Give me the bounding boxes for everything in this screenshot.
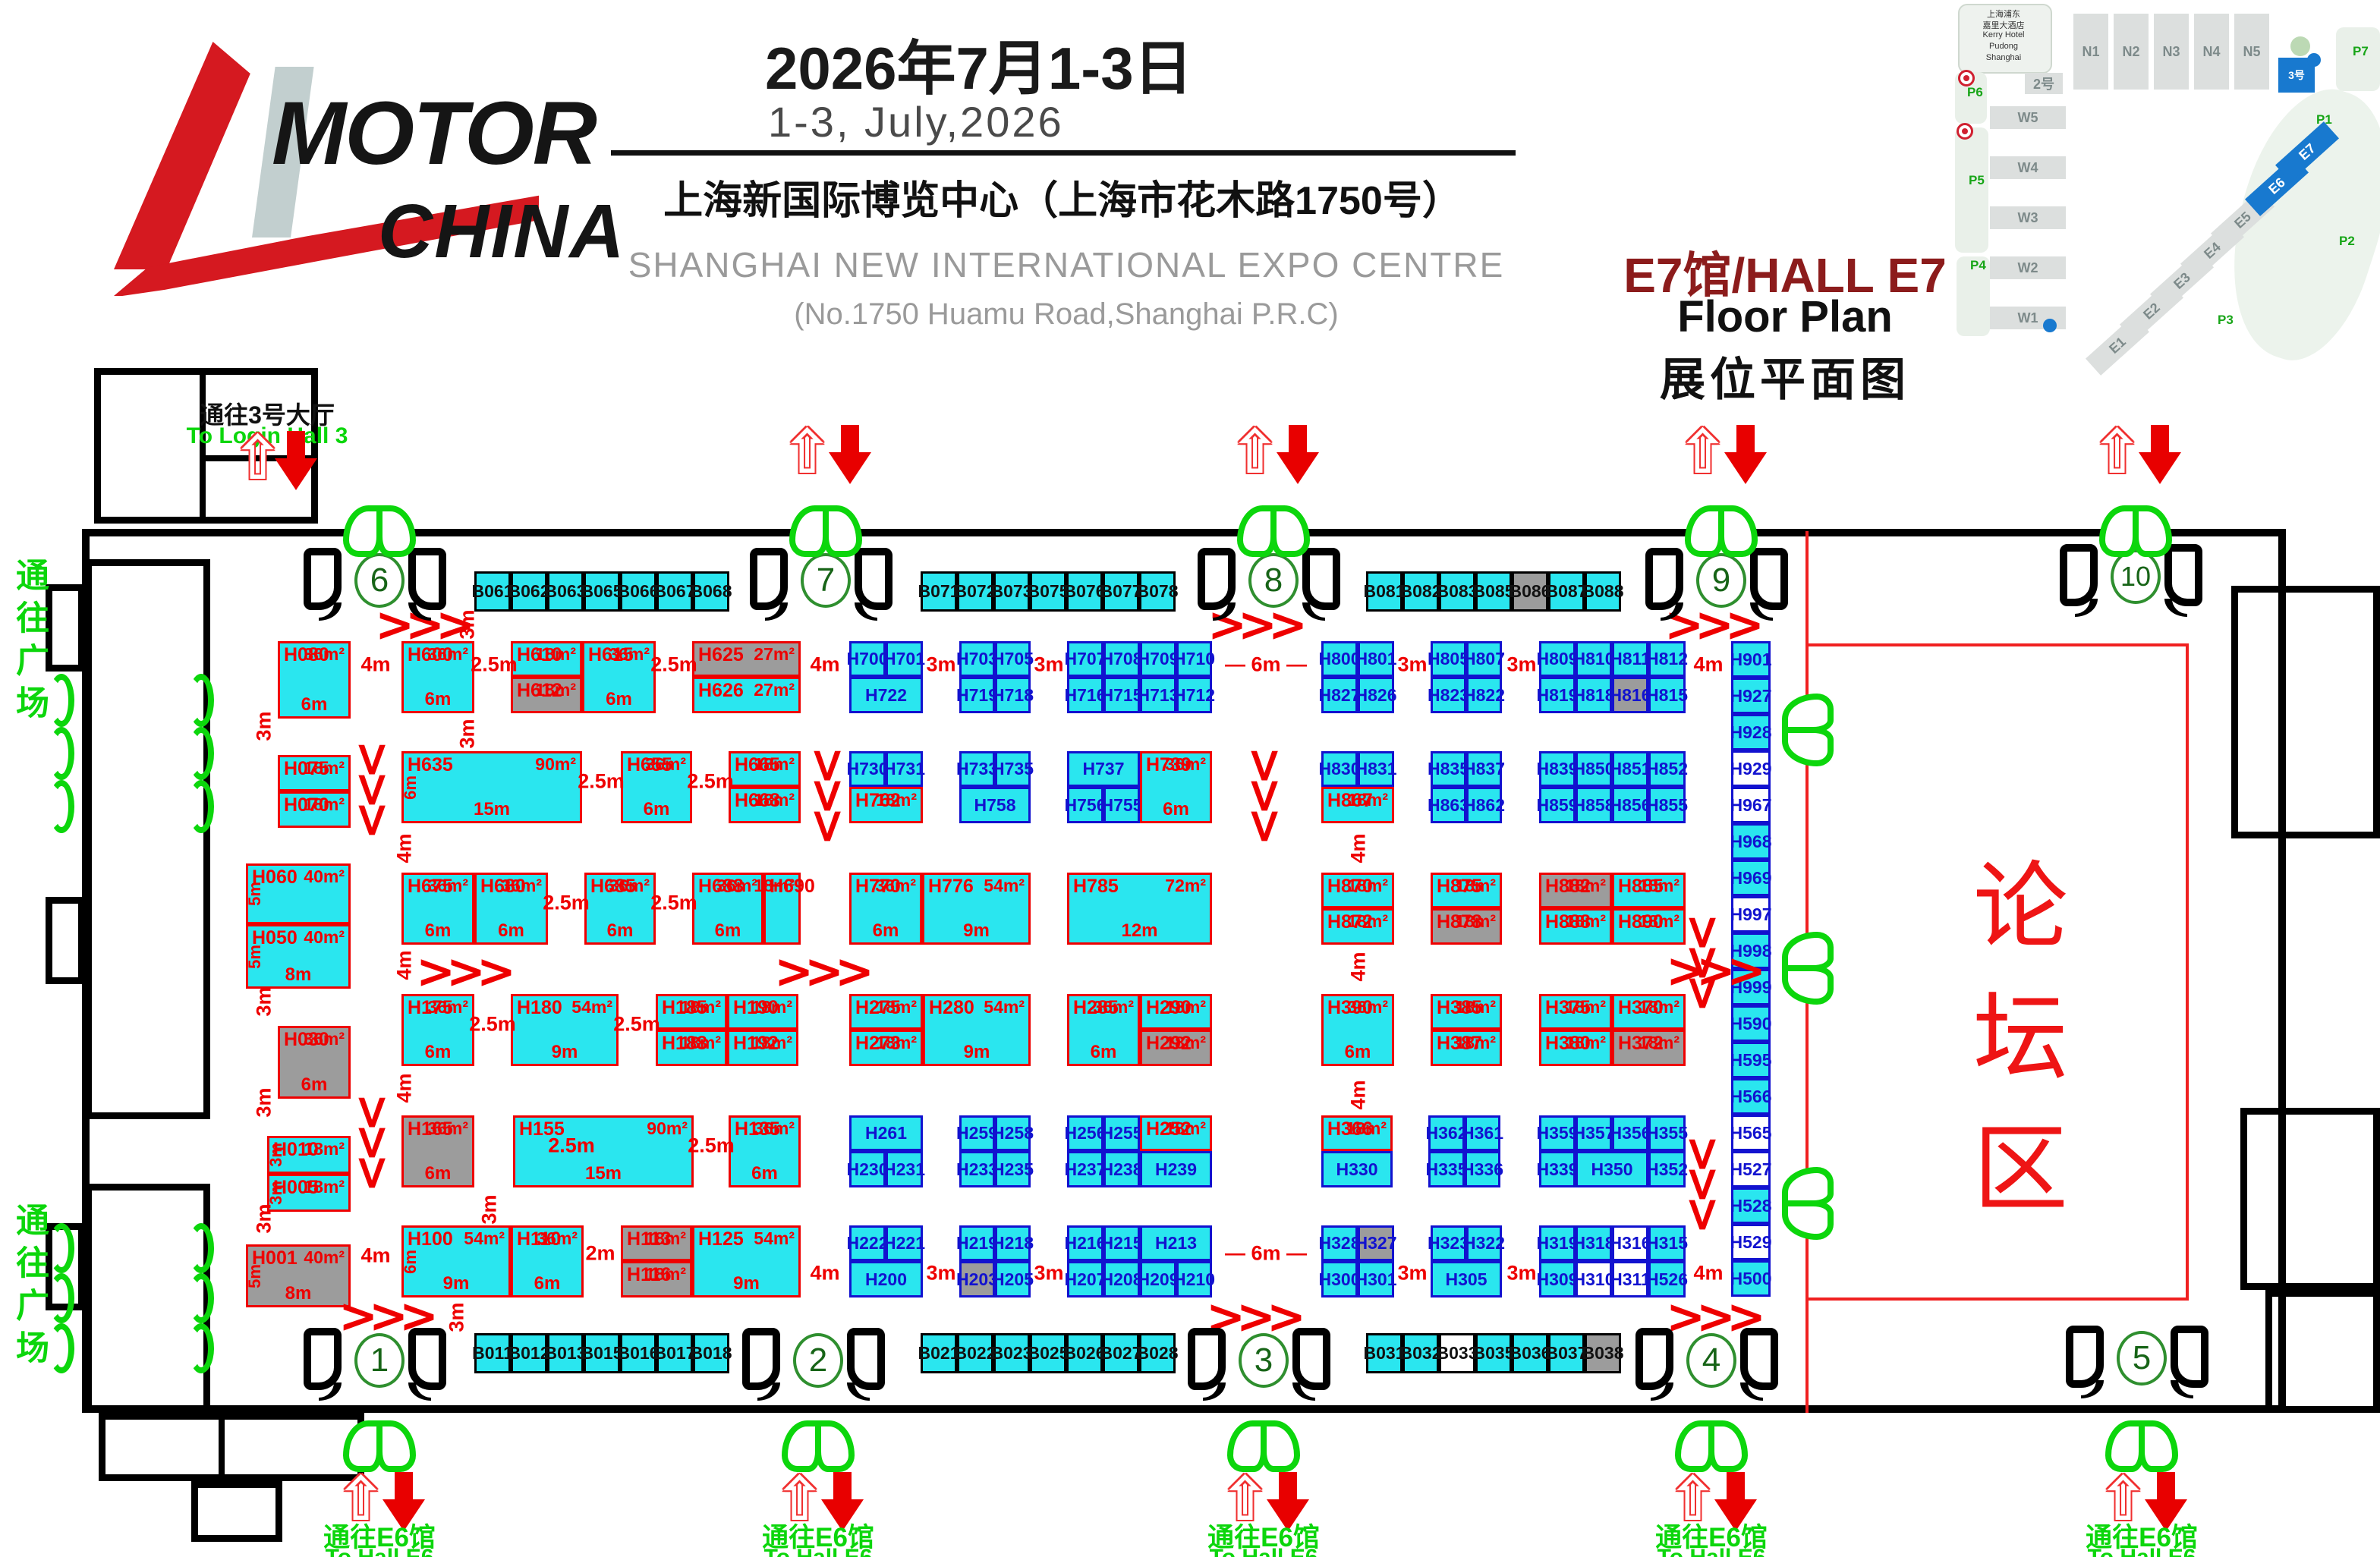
booth-H339: H339 — [1539, 1151, 1576, 1187]
booth-H707: H707 — [1067, 641, 1103, 677]
booth-B082: B082 — [1402, 571, 1439, 612]
wall — [46, 897, 85, 984]
booth-H200: H200 — [849, 1261, 923, 1297]
to-plaza-label: 通往广场 — [5, 558, 53, 728]
green-door-icon — [1782, 932, 1829, 1005]
minimap-hall-W2: W2 — [1990, 256, 2066, 279]
booth-B083: B083 — [1439, 571, 1475, 612]
gate-number-1: 1 — [354, 1333, 405, 1388]
booth-B067: B067 — [656, 571, 693, 612]
dimension-label: 2.5m — [613, 1013, 660, 1036]
booth-H192: H19218m² — [727, 1030, 798, 1066]
booth-H713: H713 — [1140, 677, 1176, 713]
booth-B018: B018 — [693, 1333, 729, 1373]
wall — [191, 1481, 282, 1542]
booth-H527: H527 — [1731, 1151, 1771, 1187]
booth-H190: H19018m² — [727, 994, 798, 1030]
dimension-label: 3m — [926, 653, 955, 677]
dimension-label: 3m — [445, 1302, 469, 1332]
minimap-hotel-label: Kerry Hotel — [1982, 30, 2024, 39]
up-arrow-outline-icon: ⇧ — [1229, 422, 1280, 483]
booth-B077: B077 — [1103, 571, 1139, 612]
booth-H361: H361 — [1465, 1115, 1500, 1151]
gate-number-3: 3 — [1239, 1333, 1289, 1388]
booth-B085: B085 — [1475, 571, 1512, 612]
dimension-label: 4m — [1693, 1262, 1723, 1285]
door-leaf-icon — [742, 1328, 780, 1390]
booth-H566: H566 — [1731, 1078, 1771, 1115]
booth-H705: H705 — [995, 641, 1031, 677]
flow-chevron-down-icon: >>> — [346, 740, 401, 831]
dimension-label: 3m — [1506, 653, 1536, 677]
flow-chevron-down-icon: >>> — [346, 1093, 401, 1184]
booth-H370: H37018m² — [1612, 994, 1686, 1030]
booth-B072: B072 — [957, 571, 993, 612]
booth-H968: H968 — [1731, 823, 1771, 860]
minimap-hall-N4: N4 — [2194, 14, 2229, 90]
dimension-label: 2.5m — [548, 1134, 595, 1158]
booth-H110: H11036m²6m — [511, 1225, 584, 1297]
booth-H615: H61536m²6m — [582, 641, 656, 713]
dimension-label: 4m — [360, 1244, 390, 1268]
booth-H855: H855 — [1648, 787, 1686, 823]
booth-H235: H235 — [995, 1151, 1031, 1187]
booth-H885: H88518m² — [1612, 873, 1686, 908]
gate-number-2: 2 — [793, 1333, 843, 1388]
dimension-label: 2m — [585, 1242, 615, 1266]
dimension-label: 4m — [810, 653, 839, 677]
booth-H733: H733 — [959, 751, 995, 787]
green-door-icon — [1782, 694, 1829, 766]
door-leaf-icon — [2164, 544, 2202, 606]
minimap-parking-P5: P5 — [1969, 173, 1985, 188]
booth-H359: H359 — [1539, 1115, 1576, 1151]
door-leaf-icon — [1292, 1328, 1330, 1390]
booth-H819: H819 — [1539, 677, 1576, 713]
event-date-en: 1-3, July,2026 — [768, 97, 1064, 146]
to-hall-e6-label-en: To Hall E6 — [2088, 1545, 2196, 1557]
booth-H387: H38718m² — [1431, 1030, 1502, 1066]
gate-number-6: 6 — [354, 553, 405, 608]
minimap-green-dot — [2290, 36, 2310, 56]
booth-H528: H528 — [1731, 1187, 1771, 1224]
dimension-label: 2.5m — [469, 1013, 516, 1036]
booth-H319: H319 — [1539, 1225, 1576, 1261]
door-leaf-icon — [1188, 1328, 1226, 1390]
booth-H316: H316 — [1612, 1225, 1648, 1261]
flow-chevron-down-icon: >>> — [1239, 746, 1294, 837]
gate-number-8: 8 — [1248, 553, 1299, 608]
booth-B065: B065 — [584, 571, 620, 612]
door-leaf-icon — [1198, 548, 1236, 610]
booth-H928: H928 — [1731, 714, 1771, 750]
booth-H180: H18054m²9m — [511, 994, 619, 1066]
door-leaf-icon — [1645, 548, 1683, 610]
booth-B012: B012 — [511, 1333, 547, 1373]
booth-H219: H219 — [959, 1225, 995, 1261]
booth-H327: H327 — [1358, 1225, 1394, 1261]
booth-B011: B011 — [474, 1333, 511, 1373]
minimap-hotel-label: 嘉里大酒店 — [1983, 19, 2025, 31]
green-door-icon — [2105, 1420, 2178, 1467]
flow-chevron-right-icon: >>> — [774, 944, 865, 999]
booth-H718: H718 — [995, 677, 1031, 713]
down-arrow-icon — [2139, 425, 2181, 484]
minimap-hall-N2: N2 — [2114, 14, 2149, 90]
booth-H255: H255 — [1103, 1115, 1140, 1151]
door-leaf-icon — [855, 548, 892, 610]
minimap-hall-N1: N1 — [2073, 14, 2108, 90]
green-door-icon — [782, 1420, 855, 1467]
to-hall-e6-label-en: To Hall E6 — [764, 1545, 873, 1557]
dimension-label: — 6m — — [1225, 1242, 1307, 1266]
floor-plan-label-cn: 展位平面图 — [1660, 343, 1910, 409]
door-leaf-icon — [304, 1328, 342, 1390]
dimension-label: 3m — [253, 1203, 276, 1233]
booth-H739: H73936m²6m — [1140, 751, 1212, 823]
booth-H239: H239 — [1140, 1151, 1212, 1187]
booth-H818: H818 — [1576, 677, 1612, 713]
booth-B033: B033 — [1439, 1333, 1475, 1373]
booth-H722: H722 — [849, 677, 923, 713]
booth-H237: H237 — [1067, 1151, 1103, 1187]
booth-B036: B036 — [1512, 1333, 1548, 1373]
booth-H328: H328 — [1321, 1225, 1358, 1261]
booth-H708: H708 — [1103, 641, 1140, 677]
door-leaf-icon — [2066, 1326, 2104, 1388]
booth-H165: H16536m²6m — [401, 1115, 474, 1187]
booth-B071: B071 — [921, 571, 957, 612]
booth-H310: H310 — [1576, 1261, 1612, 1297]
booth-H366: H36618m² — [1321, 1115, 1393, 1151]
booth-H207: H207 — [1067, 1261, 1103, 1297]
booth-H323: H323 — [1431, 1225, 1466, 1261]
booth-H285: H28536m²6m — [1067, 994, 1140, 1066]
booth-B087: B087 — [1548, 571, 1585, 612]
booth-H060: H06040m²5m — [246, 863, 351, 924]
booth-H273: H27318m² — [849, 1030, 923, 1066]
booth-H315: H315 — [1648, 1225, 1686, 1261]
booth-H735: H735 — [995, 751, 1031, 787]
flow-chevron-down-icon: >>> — [1676, 913, 1732, 1004]
booth-H208: H208 — [1103, 1261, 1140, 1297]
booth-B023: B023 — [993, 1333, 1030, 1373]
booth-H882: H88218m² — [1539, 873, 1612, 908]
booth-H080: H08036m²6m — [278, 641, 351, 719]
minimap-metro-icon — [1958, 70, 1975, 86]
door-leaf-icon — [2171, 1326, 2208, 1388]
booth-H827: H827 — [1321, 677, 1358, 713]
minimap-parking-P4: P4 — [1970, 258, 1986, 273]
booth-H318: H318 — [1576, 1225, 1612, 1261]
booth-H258: H258 — [995, 1115, 1031, 1151]
minimap-entrance-2: 2号 — [2025, 73, 2063, 94]
booth-H375: H37518m² — [1539, 994, 1612, 1030]
booth-B037: B037 — [1548, 1333, 1585, 1373]
booth-H688: H68836m²6m — [692, 873, 763, 945]
booth-H215: H215 — [1103, 1225, 1140, 1261]
dimension-label: 3m — [1034, 653, 1063, 677]
dimension-label: 3m — [1034, 1262, 1063, 1285]
to-hall-e6-label-en: To Hall E6 — [1210, 1545, 1318, 1557]
green-door-icon — [789, 505, 862, 552]
booth-B025: B025 — [1030, 1333, 1066, 1373]
booth-H815: H815 — [1648, 677, 1686, 713]
booth-H831: H831 — [1358, 751, 1394, 787]
booth-H005: H00518m²3m — [267, 1174, 351, 1212]
booth-B016: B016 — [620, 1333, 656, 1373]
minimap-hotel-label: 上海浦东 — [1987, 8, 2020, 20]
booth-H756: H756 — [1067, 787, 1103, 823]
booth-B026: B026 — [1066, 1333, 1103, 1373]
booth-H001: H00140m²8m5m — [246, 1244, 351, 1307]
flow-chevron-down-icon: >>> — [801, 746, 857, 837]
door-leaf-icon — [750, 548, 788, 610]
minimap-parking-P2: P2 — [2339, 234, 2355, 249]
up-arrow-outline-icon: ⇧ — [2092, 422, 2142, 483]
booth-H800: H800 — [1321, 641, 1358, 677]
booth-H668: H66818m² — [729, 787, 801, 823]
dimension-label: 2.5m — [543, 892, 590, 915]
booth-H125: H12554m²9m — [692, 1225, 801, 1297]
booth-H835: H835 — [1431, 751, 1466, 787]
booth-H261: H261 — [849, 1115, 923, 1151]
green-door-icon — [343, 1420, 416, 1467]
minimap-parking-P6: P6 — [1967, 85, 1983, 100]
booth-H701: H701 — [886, 641, 923, 677]
up-arrow-outline-icon: ⇧ — [1677, 422, 1728, 483]
booth-H222: H222 — [849, 1225, 886, 1261]
dimension-label: 3m — [1397, 1262, 1427, 1285]
green-door-icon — [2099, 505, 2172, 552]
booth-H385: H38518m² — [1431, 994, 1502, 1030]
minimap-hall-W5: W5 — [1990, 106, 2066, 129]
logo-motor-text: MOTOR — [272, 82, 596, 185]
booth-H655: H65536m²6m — [621, 751, 692, 823]
booth-H969: H969 — [1731, 860, 1771, 896]
booth-B075: B075 — [1030, 571, 1066, 612]
wall — [2265, 1290, 2380, 1413]
booth-H635: H63590m²15m6m — [401, 751, 582, 823]
booth-H100: H10054m²9m6m — [401, 1225, 511, 1297]
to-plaza-label: 通往广场 — [5, 1203, 53, 1373]
booth-H113: H11318m² — [621, 1225, 692, 1261]
booth-B086: B086 — [1512, 571, 1548, 612]
booth-H155: H15590m²15m — [513, 1115, 694, 1187]
booth-H851: H851 — [1612, 751, 1648, 787]
booth-H625: H62527m² — [692, 641, 801, 677]
booth-H700: H700 — [849, 641, 886, 677]
dimension-label: 2.5m — [578, 770, 625, 794]
wall-line — [219, 1413, 225, 1481]
booth-H301: H301 — [1358, 1261, 1394, 1297]
booth-H758: H758 — [959, 787, 1031, 823]
wall — [85, 559, 210, 1119]
booth-H856: H856 — [1612, 787, 1648, 823]
booth-H030: H03036m²6m — [278, 1026, 351, 1099]
forum-area-label: 论坛区 — [1943, 856, 2080, 1250]
booth-H709: H709 — [1140, 641, 1176, 677]
booth-B073: B073 — [993, 571, 1030, 612]
minimap-entrance-dot — [2043, 319, 2057, 332]
dimension-label: 4m — [393, 950, 417, 980]
booth-H380: H38018m² — [1539, 1030, 1612, 1066]
booth-H858: H858 — [1576, 787, 1612, 823]
booth-H372: H37218m² — [1612, 1030, 1686, 1066]
booth-H116: H11618m² — [621, 1261, 692, 1297]
booth-H216: H216 — [1067, 1225, 1103, 1261]
booth-H770: H77036m²6m — [849, 873, 922, 945]
booth-H785: H78572m²12m — [1067, 873, 1212, 945]
booth-H185: H18518m² — [656, 994, 727, 1030]
booth-H878: H87818m² — [1431, 908, 1502, 945]
booth-H612: H61218m² — [511, 677, 582, 713]
booth-H710: H710 — [1176, 641, 1212, 677]
venue-address: (No.1750 Huamu Road,Shanghai P.R.C) — [794, 297, 1338, 332]
booth-H809: H809 — [1539, 641, 1576, 677]
dimension-label: 4m — [360, 653, 390, 677]
booth-H357: H357 — [1576, 1115, 1612, 1151]
dimension-label: 2.5m — [650, 653, 697, 677]
venue-name-en: SHANGHAI NEW INTERNATIONAL EXPO CENTRE — [628, 244, 1505, 285]
booth-B021: B021 — [921, 1333, 957, 1373]
minimap-hall-N3: N3 — [2154, 14, 2189, 90]
booth-H810: H810 — [1576, 641, 1612, 677]
dimension-label: 2.5m — [687, 770, 734, 794]
flow-chevron-right-icon: >>> — [416, 944, 507, 999]
down-arrow-icon — [1277, 425, 1319, 484]
accordion-door-icon — [49, 674, 76, 833]
minimap-parking-P1: P1 — [2316, 112, 2332, 127]
up-arrow-outline-icon: ⇧ — [782, 422, 833, 483]
minimap-hotel-label: Shanghai — [1986, 53, 2022, 62]
door-leaf-icon — [1740, 1328, 1778, 1390]
green-door-icon — [1227, 1420, 1300, 1467]
booth-H685: H68536m²6m — [584, 873, 656, 945]
dimension-label: 3m — [253, 711, 276, 741]
booth-H888: H88818m² — [1539, 908, 1612, 945]
booth-H256: H256 — [1067, 1115, 1103, 1151]
header-divider — [611, 150, 1516, 156]
booth-H716: H716 — [1067, 677, 1103, 713]
door-leaf-icon — [408, 1328, 446, 1390]
booth-H050: H05040m²8m5m — [246, 924, 351, 989]
booth-H837: H837 — [1466, 751, 1502, 787]
dimension-label: 2.5m — [688, 1134, 735, 1158]
booth-H826: H826 — [1358, 677, 1394, 713]
booth-B027: B027 — [1103, 1333, 1139, 1373]
dimension-label: 3m — [926, 1262, 955, 1285]
booth-H565: H565 — [1731, 1115, 1771, 1151]
booth-H175: H17536m²6m — [401, 994, 474, 1066]
booth-B061: B061 — [474, 571, 511, 612]
booth-H859: H859 — [1539, 787, 1576, 823]
booth-H305: H305 — [1431, 1261, 1502, 1297]
booth-B028: B028 — [1139, 1333, 1176, 1373]
booth-H762: H76218m² — [849, 787, 923, 823]
minimap-parking-zone — [1955, 127, 1988, 253]
booth-H839: H839 — [1539, 751, 1576, 787]
booth-H830: H830 — [1321, 751, 1358, 787]
booth-H362: H362 — [1428, 1115, 1465, 1151]
booth-H712: H712 — [1176, 677, 1212, 713]
venue-name-cn: 上海新国际博览中心（上海市花木路1750号） — [663, 168, 1462, 225]
booth-H801: H801 — [1358, 641, 1394, 677]
booth-H309: H309 — [1539, 1261, 1576, 1297]
booth-H872: H87218m² — [1321, 908, 1394, 945]
booth-H863: H863 — [1431, 787, 1466, 823]
dimension-label: 3m — [456, 719, 480, 748]
booth-H997: H997 — [1731, 896, 1771, 933]
accordion-door-icon — [188, 674, 216, 833]
booth-B015: B015 — [584, 1333, 620, 1373]
accordion-door-icon — [49, 1223, 76, 1375]
booth-B032: B032 — [1402, 1333, 1439, 1373]
booth-H816: H816 — [1612, 677, 1648, 713]
booth-H927: H927 — [1731, 678, 1771, 714]
booth-B063: B063 — [547, 571, 584, 612]
booth-H010: H01018m²3m — [267, 1136, 351, 1174]
minimap-entrance-dot — [2307, 53, 2321, 67]
door-leaf-icon — [1750, 548, 1788, 610]
dimension-label: 2.5m — [650, 892, 697, 915]
booth-H822: H822 — [1466, 677, 1502, 713]
dimension-label: — 6m — — [1225, 653, 1307, 677]
booth-H290: H29018m² — [1140, 994, 1212, 1030]
dimension-label: 4m — [1347, 951, 1371, 981]
booth-H311: H311 — [1612, 1261, 1648, 1297]
dimension-label: 4m — [393, 833, 417, 863]
gate-number-5: 5 — [2117, 1331, 2167, 1386]
booth-H221: H221 — [886, 1225, 923, 1261]
booth-H259: H259 — [959, 1115, 995, 1151]
booth-H070: H07018m² — [278, 791, 351, 828]
minimap-hotel-label: Pudong — [1989, 42, 2018, 51]
booth-H595: H595 — [1731, 1042, 1771, 1078]
booth-H811: H811 — [1612, 641, 1648, 677]
booth-H610: H61018m² — [511, 641, 582, 677]
event-date-cn: 2026年7月1-3日 — [765, 21, 1193, 106]
down-arrow-icon — [275, 431, 317, 490]
booth-H626: H62627m² — [692, 677, 801, 713]
booth-H356: H356 — [1612, 1115, 1648, 1151]
booth-H875: H87518m² — [1431, 873, 1502, 908]
booth-B017: B017 — [656, 1333, 693, 1373]
booth-H252: H25218m² — [1140, 1115, 1212, 1151]
booth-H719: H719 — [959, 677, 995, 713]
dimension-label: 4m — [1693, 653, 1723, 677]
flow-chevron-down-icon: >>> — [1676, 1134, 1732, 1225]
dimension-label: 2.5m — [471, 653, 518, 677]
booth-H807: H807 — [1466, 641, 1502, 677]
gate-number-9: 9 — [1696, 553, 1746, 608]
booth-H737: H737 — [1067, 751, 1140, 787]
door-leaf-icon — [1302, 548, 1340, 610]
gate-number-10: 10 — [2111, 549, 2161, 604]
booth-H967: H967 — [1731, 787, 1771, 823]
booth-H715: H715 — [1103, 677, 1140, 713]
booth-H675: H67536m²6m — [401, 873, 474, 945]
minimap-hall-N5: N5 — [2234, 14, 2269, 90]
door-leaf-icon — [2060, 544, 2098, 606]
minimap-parking-P7: P7 — [2353, 44, 2369, 59]
down-arrow-icon — [1724, 425, 1767, 484]
booth-H335: H335 — [1428, 1151, 1465, 1187]
booth-H929: H929 — [1731, 750, 1771, 787]
booth-B081: B081 — [1366, 571, 1402, 612]
booth-H805: H805 — [1431, 641, 1466, 677]
booth-H850: H850 — [1576, 751, 1612, 787]
